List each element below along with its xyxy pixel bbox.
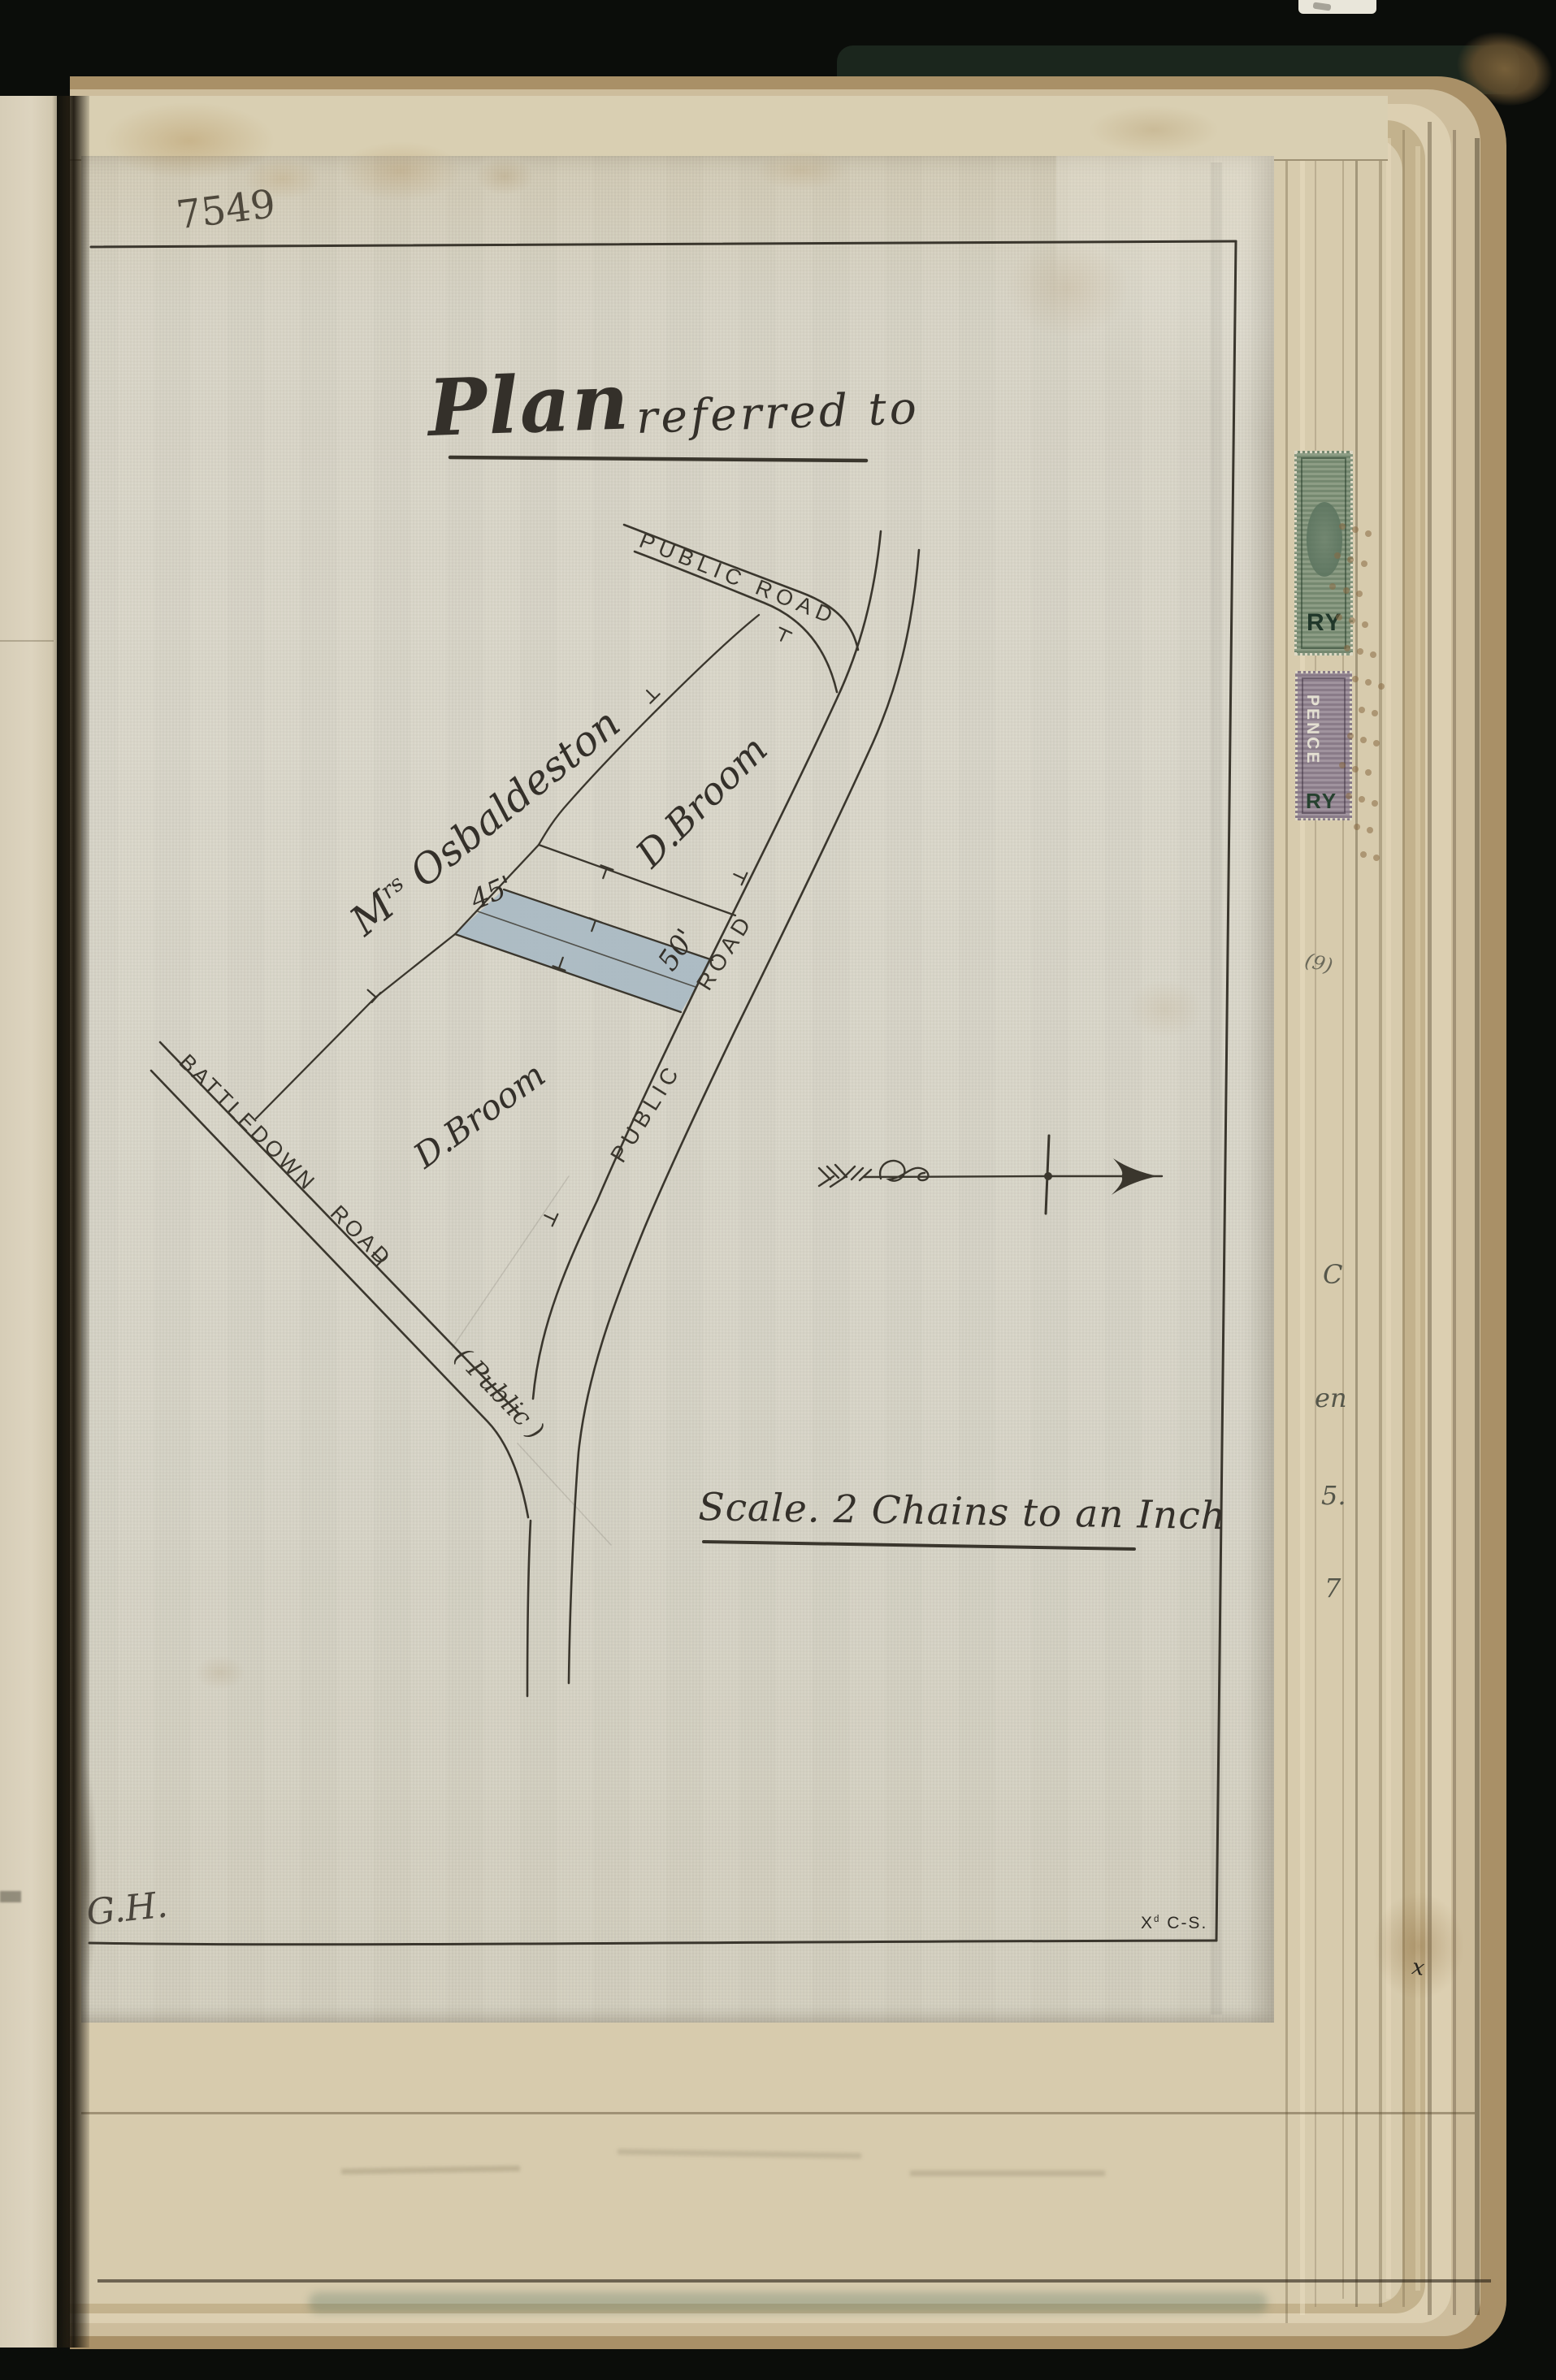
edge-fragment: en — [1315, 1383, 1347, 1413]
corner-mark-rest: C-S. — [1160, 1914, 1207, 1932]
green-revenue-stamp: RY — [1294, 451, 1353, 656]
surveyor-initials: G.H. — [85, 1885, 170, 1934]
purple-revenue-stamp: PENCE RY — [1295, 671, 1352, 820]
book-scan: RY PENCE RY (9) C en 5. 7 x — [0, 0, 1556, 2380]
tracing-overlay-corner — [1056, 156, 1274, 448]
page-title-rest: referred to — [635, 382, 921, 444]
corner-mark-x: X — [1141, 1914, 1154, 1932]
gutter-shadow — [52, 96, 89, 2348]
stamp-word-pence: PENCE — [1302, 695, 1322, 765]
label-scribble — [1313, 2, 1332, 11]
page-title-word: Plan — [427, 355, 631, 454]
edge-fragment: 7 — [1324, 1573, 1341, 1603]
cover-top-label — [1298, 0, 1376, 14]
stamp-text-fragment: RY — [1307, 609, 1343, 637]
scale-note: Scale. 2 Chains to an Inch — [698, 1485, 1226, 1538]
left-page — [0, 96, 57, 2348]
examiner-corner-mark: Xd C-S. — [1141, 1914, 1207, 1933]
stamp-text-fragment: RY — [1306, 789, 1337, 814]
top-page-strip — [70, 96, 1388, 161]
edge-fragment: C — [1323, 1259, 1342, 1290]
edge-fragment: 5. — [1321, 1480, 1346, 1511]
stamp-medallion — [1307, 502, 1342, 577]
